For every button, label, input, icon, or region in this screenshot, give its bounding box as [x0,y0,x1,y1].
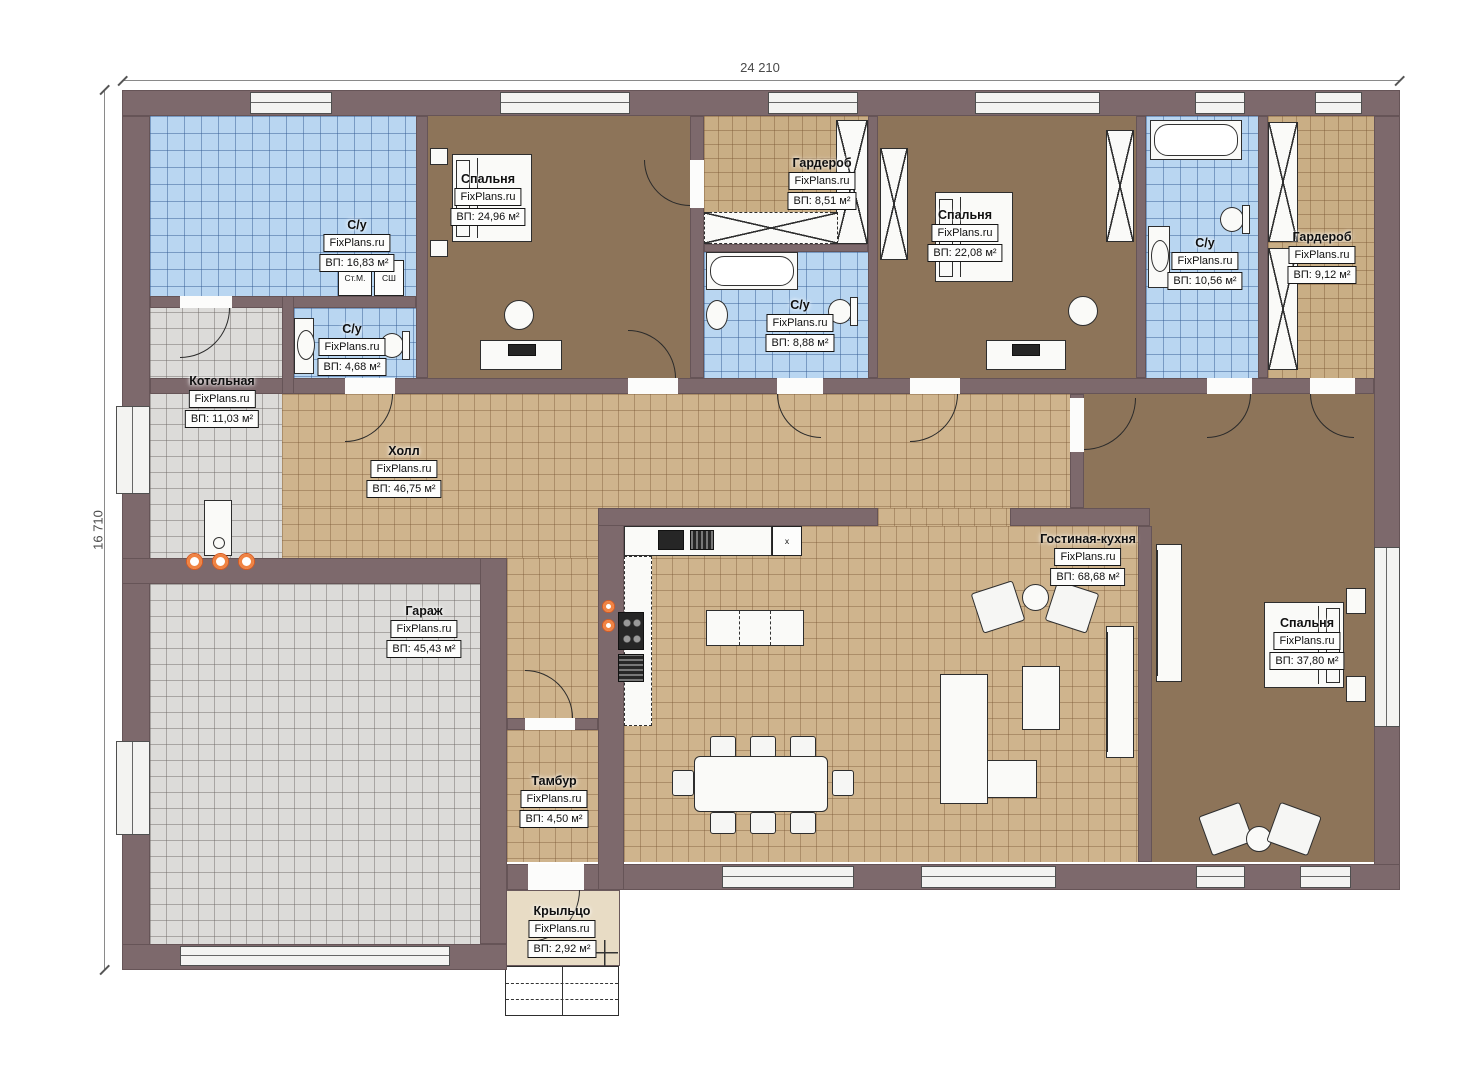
wall-bedroom1-east [690,116,704,378]
window [722,866,854,888]
window [116,406,150,494]
burner-icon [602,619,615,632]
burner-icon [238,553,255,570]
computer-icon [508,344,536,356]
sink-icon [706,300,728,330]
bed-icon [452,154,532,242]
garage-door [180,946,450,966]
toilet-icon [1220,207,1244,232]
wardrobe-icon [836,120,868,244]
dimension-line-top [122,80,1400,81]
bed-icon [935,192,1013,282]
sofa-chaise-icon [987,760,1037,798]
wall-garage-top [122,558,506,584]
closet-icon [1106,130,1134,242]
dryer-label: СШ [382,273,396,283]
plant-icon [504,300,534,330]
wardrobe-icon [704,212,838,244]
floor-hall-living-opening [878,508,1010,526]
wall-bath1-east [416,116,428,378]
chair-icon [672,770,694,796]
burner-icon [212,553,229,570]
window [1300,866,1351,888]
plant-icon [1068,296,1098,326]
wall-right [1374,116,1400,890]
door-bedroom-1-wardrobe [690,160,704,208]
kitchen-sink-icon [658,530,684,550]
wall-living-bedroom3 [1138,526,1152,862]
door-wardrobe-2 [1310,378,1355,394]
sink-icon [297,330,315,360]
door-vestibule [525,718,575,730]
door-bathroom-4 [345,378,395,394]
tv-stand-icon [1156,544,1182,682]
window [1196,866,1245,888]
toilet-icon [380,333,404,358]
toilet-tank-icon [402,331,410,360]
kitchen-island-icon [706,610,804,646]
wall-bath3-east [1258,116,1268,378]
window [1374,547,1400,727]
nightstand-icon [430,240,448,257]
dimension-width: 24 210 [740,60,780,75]
door-bedroom-1 [628,378,678,394]
door-entrance [528,864,584,890]
wall-kitchen-west [598,508,624,890]
floor-garage [150,584,480,944]
wall-wardrobe1-bottom [704,244,868,252]
oven-icon [618,654,644,682]
chair-icon [790,736,816,758]
door-bathroom-2 [777,378,823,394]
burner-icon [602,600,615,613]
window [768,92,858,114]
window [1195,92,1245,114]
bed-icon [1264,602,1344,688]
closet-icon [880,148,908,260]
bathtub-icon [706,252,798,290]
coffee-table-icon [1022,666,1060,730]
dryer-box: СШ [374,260,404,296]
toilet-tank-icon [1242,205,1250,234]
wall-hall-top [150,378,1374,394]
wall-garage-east [480,558,507,944]
floor-plan: Ст.М. СШ x [0,0,1473,1080]
dining-table-icon [694,756,828,812]
bathtub-icon [1150,120,1242,160]
washing-machine-box: Ст.М. [338,260,372,296]
toilet-icon [828,299,852,324]
sofa-icon [940,674,988,804]
dish-rack-icon [690,530,714,550]
door-bedroom-2 [910,378,960,394]
chair-icon [750,736,776,758]
floor-hall-west [282,508,598,558]
wardrobe-icon [1268,122,1298,242]
floor-bedroom-3 [1152,526,1374,862]
wall-left [122,116,150,970]
stove-icon [618,612,644,650]
wall-bath2-east [868,116,878,378]
window [921,866,1056,888]
chair-icon [710,736,736,758]
chair-icon [710,812,736,834]
fridge-label: x [785,536,789,546]
sink-icon [1151,240,1169,272]
door-bathroom-3 [1207,378,1252,394]
survey-cross-icon [592,940,618,966]
chair-icon [790,812,816,834]
wall-living-top [1010,508,1150,526]
chair-icon [750,812,776,834]
window [116,741,150,835]
toilet-tank-icon [850,297,858,326]
window [1315,92,1362,114]
wall-boiler-east [282,296,294,394]
floor-vestibule [507,730,598,862]
wall-kitchen-top [598,508,878,526]
window [500,92,630,114]
chair-icon [832,770,854,796]
boiler-icon [204,500,232,556]
door-boiler [180,296,232,308]
stairs-icon [505,966,619,1016]
door-bedroom-3 [1070,398,1084,452]
window [975,92,1100,114]
tv-stand-icon [1106,626,1134,758]
burner-icon [186,553,203,570]
nightstand-icon [1346,588,1366,614]
side-table-icon [1022,584,1049,611]
nightstand-icon [430,148,448,165]
washing-machine-label: Ст.М. [345,273,366,283]
wardrobe-icon [1268,248,1298,370]
nightstand-icon [1346,676,1366,702]
dimension-height: 16 710 [91,510,106,550]
wall-bedroom2-east [1136,116,1146,378]
fridge-box: x [772,526,802,556]
window [250,92,332,114]
computer-icon [1012,344,1040,356]
